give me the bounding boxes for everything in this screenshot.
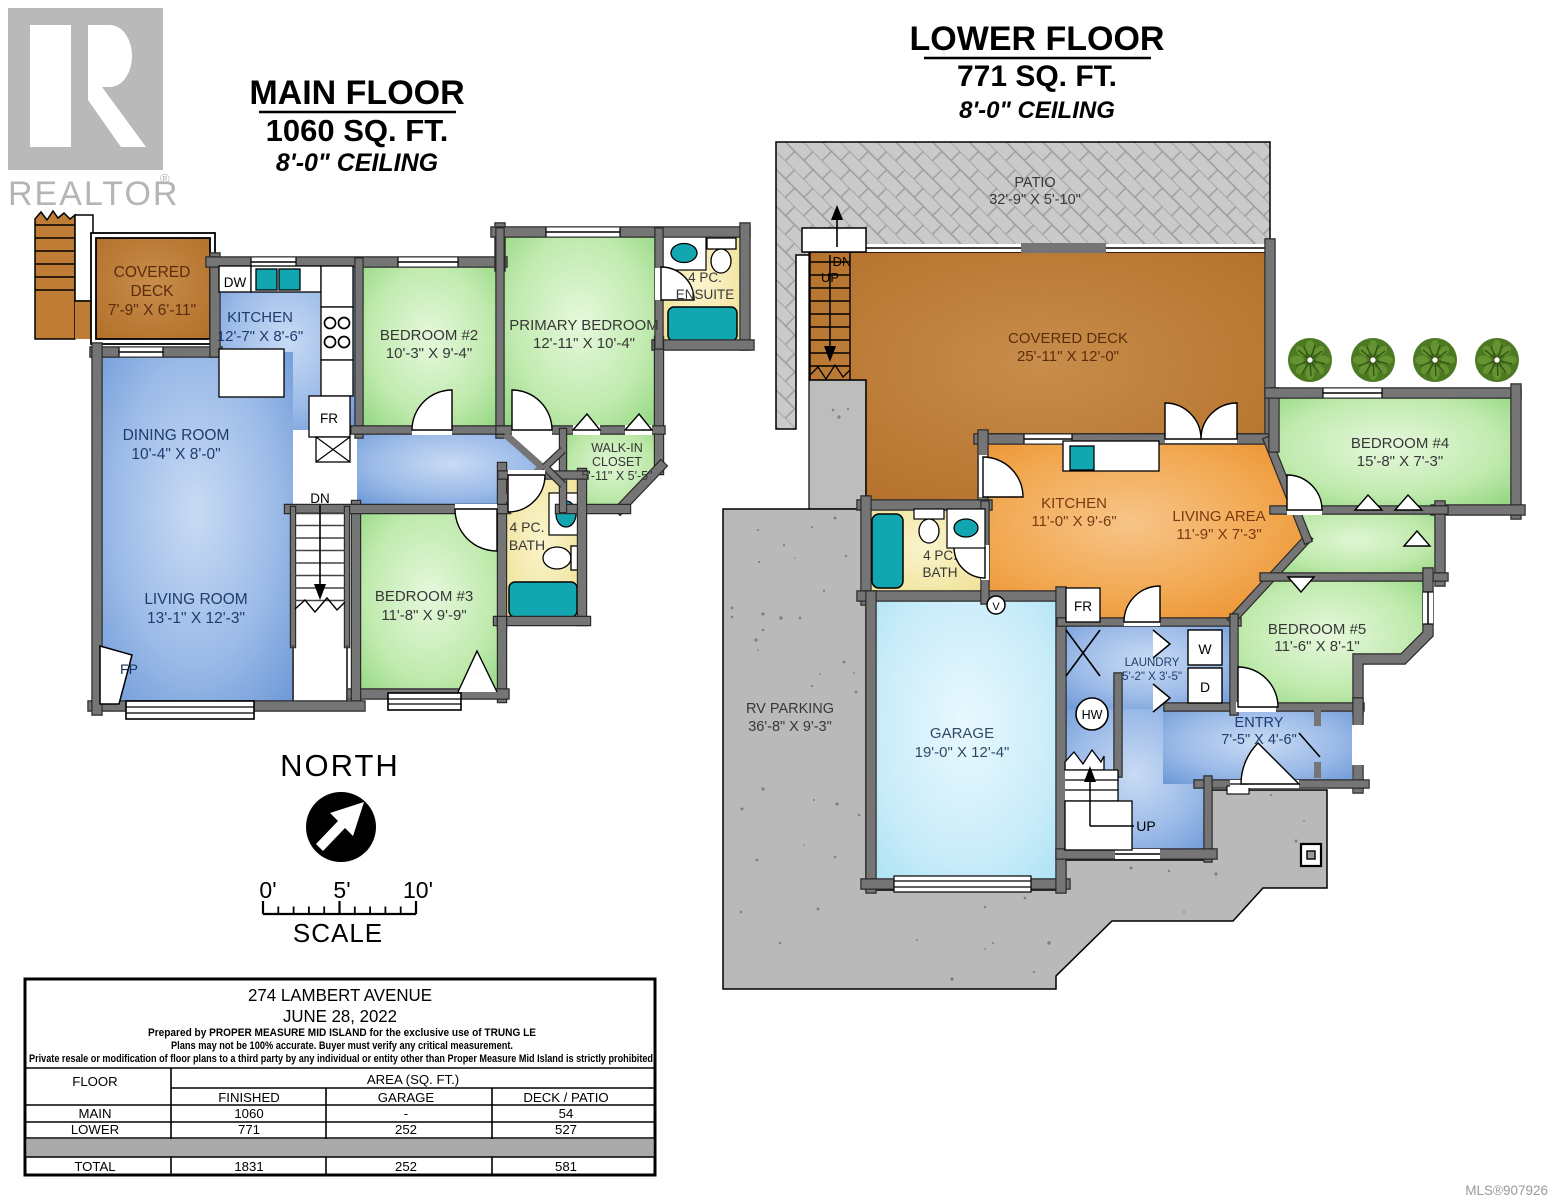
svg-text:12'-11" X 10'-4": 12'-11" X 10'-4" xyxy=(533,335,635,352)
svg-text:1831: 1831 xyxy=(234,1159,263,1174)
svg-text:FINISHED: FINISHED xyxy=(218,1090,280,1105)
svg-text:13'-1" X 12'-3": 13'-1" X 12'-3" xyxy=(147,610,245,627)
svg-text:HW: HW xyxy=(1082,708,1103,722)
svg-text:FP: FP xyxy=(120,661,138,677)
svg-text:11'-8" X 9'-9": 11'-8" X 9'-9" xyxy=(381,607,466,624)
svg-text:BEDROOM #2: BEDROOM #2 xyxy=(380,327,478,344)
svg-text:LOWER: LOWER xyxy=(71,1122,119,1137)
svg-text:DECK / PATIO: DECK / PATIO xyxy=(523,1090,608,1105)
svg-text:FLOOR: FLOOR xyxy=(72,1074,117,1089)
svg-text:BEDROOM #3: BEDROOM #3 xyxy=(375,588,473,605)
svg-text:Prepared by PROPER MEASURE MID: Prepared by PROPER MEASURE MID ISLAND fo… xyxy=(148,1027,536,1039)
svg-text:1060: 1060 xyxy=(234,1106,263,1121)
svg-text:11'-6" X 8'-1": 11'-6" X 8'-1" xyxy=(1274,638,1359,655)
svg-text:UP: UP xyxy=(821,270,839,285)
svg-text:TOTAL: TOTAL xyxy=(74,1159,115,1174)
svg-text:5'-11" X 5'-5": 5'-11" X 5'-5" xyxy=(581,469,652,483)
svg-text:REALTOR: REALTOR xyxy=(8,175,179,213)
svg-text:DINING ROOM: DINING ROOM xyxy=(123,427,230,444)
svg-text:LOWER FLOOR: LOWER FLOOR xyxy=(910,20,1165,58)
svg-text:1060 SQ. FT.: 1060 SQ. FT. xyxy=(266,113,449,148)
svg-text:274 LAMBERT AVENUE: 274 LAMBERT AVENUE xyxy=(248,985,432,1005)
svg-text:4 PC.: 4 PC. xyxy=(688,270,722,285)
svg-text:KITCHEN: KITCHEN xyxy=(227,309,293,326)
svg-text:771 SQ. FT.: 771 SQ. FT. xyxy=(957,60,1117,93)
svg-text:MAIN FLOOR: MAIN FLOOR xyxy=(249,74,464,112)
svg-text:KITCHEN: KITCHEN xyxy=(1041,495,1107,512)
svg-text:GARAGE: GARAGE xyxy=(930,725,994,742)
svg-text:7'-9" X 6'-11": 7'-9" X 6'-11" xyxy=(108,302,196,319)
svg-text:8'-0" CEILING: 8'-0" CEILING xyxy=(276,149,438,177)
svg-text:10'-3" X 9'-4": 10'-3" X 9'-4" xyxy=(386,345,472,362)
svg-text:25'-11" X 12'-0": 25'-11" X 12'-0" xyxy=(1017,348,1119,365)
svg-text:BEDROOM #5: BEDROOM #5 xyxy=(1268,621,1366,638)
svg-text:PATIO: PATIO xyxy=(1014,175,1055,191)
svg-text:5'-2" X 3'-5": 5'-2" X 3'-5" xyxy=(1122,671,1182,683)
svg-text:AREA (SQ. FT.): AREA (SQ. FT.) xyxy=(367,1072,459,1087)
svg-text:11'-9" X 7'-3": 11'-9" X 7'-3" xyxy=(1176,526,1261,543)
svg-text:CLOSET: CLOSET xyxy=(592,455,642,469)
svg-text:36'-8" X 9'-3": 36'-8" X 9'-3" xyxy=(748,719,832,735)
svg-text:Private resale or modificatio: Private resale or modification of floor … xyxy=(29,1053,653,1065)
svg-text:WALK-IN: WALK-IN xyxy=(591,441,643,455)
svg-text:SCALE: SCALE xyxy=(293,918,383,948)
svg-text:DW: DW xyxy=(224,275,247,290)
svg-text:-: - xyxy=(404,1106,408,1121)
svg-text:W: W xyxy=(1198,641,1212,657)
svg-text:COVERED DECK: COVERED DECK xyxy=(1008,330,1128,347)
svg-text:4 PC.: 4 PC. xyxy=(923,548,957,563)
svg-text:MLS®907926: MLS®907926 xyxy=(1465,1183,1548,1198)
svg-text:581: 581 xyxy=(555,1159,577,1174)
svg-text:RV PARKING: RV PARKING xyxy=(746,701,834,717)
svg-text:PRIMARY BEDROOM: PRIMARY BEDROOM xyxy=(509,317,658,334)
svg-text:12'-7" X 8'-6": 12'-7" X 8'-6" xyxy=(217,328,303,345)
svg-text:19'-0" X 12'-4": 19'-0" X 12'-4" xyxy=(915,744,1010,761)
svg-text:V: V xyxy=(992,601,1000,613)
svg-text:FR: FR xyxy=(320,411,338,426)
svg-text:ENSUITE: ENSUITE xyxy=(676,287,735,302)
svg-text:®: ® xyxy=(160,171,170,186)
svg-text:BEDROOM #4: BEDROOM #4 xyxy=(1351,435,1449,452)
svg-text:11'-0" X 9'-6": 11'-0" X 9'-6" xyxy=(1031,513,1116,530)
svg-text:GARAGE: GARAGE xyxy=(378,1090,435,1105)
svg-text:JUNE 28, 2022: JUNE 28, 2022 xyxy=(283,1006,397,1026)
svg-text:FR: FR xyxy=(1074,599,1092,614)
svg-text:NORTH: NORTH xyxy=(280,748,400,783)
svg-text:DECK: DECK xyxy=(130,283,174,300)
svg-text:10': 10' xyxy=(403,877,433,903)
svg-text:252: 252 xyxy=(395,1159,417,1174)
svg-text:DN: DN xyxy=(833,254,852,269)
svg-text:0': 0' xyxy=(259,877,276,903)
svg-text:BATH: BATH xyxy=(509,537,545,553)
svg-text:D: D xyxy=(1200,679,1210,695)
svg-text:10'-4" X 8'-0": 10'-4" X 8'-0" xyxy=(131,446,220,463)
svg-text:771: 771 xyxy=(238,1122,260,1137)
svg-text:COVERED: COVERED xyxy=(114,264,191,281)
svg-text:ENTRY: ENTRY xyxy=(1235,715,1284,731)
svg-text:BATH: BATH xyxy=(922,565,957,580)
svg-text:LIVING AREA: LIVING AREA xyxy=(1172,508,1265,525)
svg-text:252: 252 xyxy=(395,1122,417,1137)
svg-text:32'-9" X 5'-10": 32'-9" X 5'-10" xyxy=(989,192,1081,208)
svg-text:LIVING ROOM: LIVING ROOM xyxy=(144,591,247,608)
svg-text:15'-8" X 7'-3": 15'-8" X 7'-3" xyxy=(1357,453,1443,470)
svg-text:MAIN: MAIN xyxy=(79,1106,112,1121)
svg-text:DN: DN xyxy=(310,491,330,506)
svg-text:8'-0" CEILING: 8'-0" CEILING xyxy=(959,97,1115,124)
svg-text:UP: UP xyxy=(1136,818,1155,834)
svg-text:527: 527 xyxy=(555,1122,577,1137)
svg-text:4 PC.: 4 PC. xyxy=(509,519,544,535)
svg-text:5': 5' xyxy=(333,877,350,903)
svg-text:Plans may not be 100% accurate: Plans may not be 100% accurate. Buyer mu… xyxy=(171,1040,513,1052)
svg-text:54: 54 xyxy=(559,1106,574,1121)
svg-text:7'-5" X 4'-6": 7'-5" X 4'-6" xyxy=(1221,732,1296,748)
svg-text:LAUNDRY: LAUNDRY xyxy=(1125,657,1180,669)
